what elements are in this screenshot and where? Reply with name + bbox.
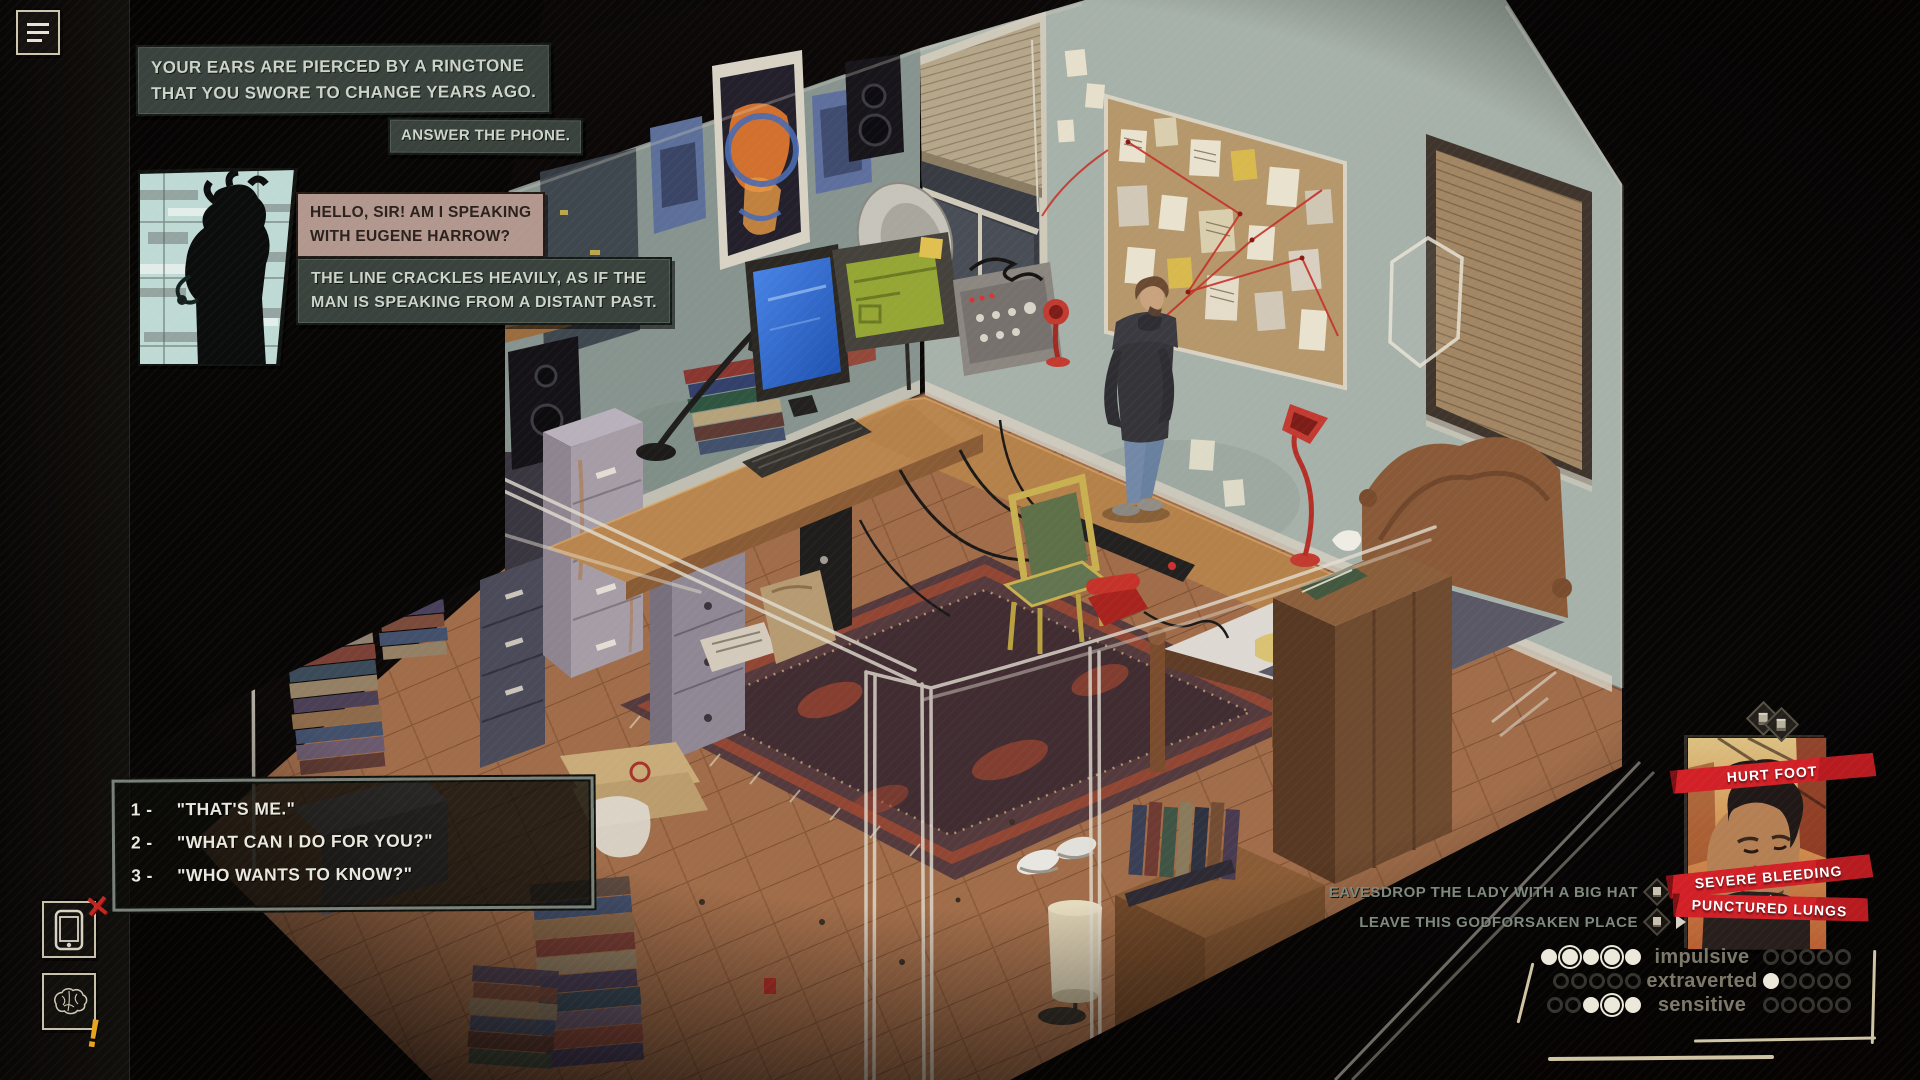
trait-dot-empty — [1763, 949, 1779, 965]
caller-speech-box: HELLO, SIR! AM I SPEAKING WITH EUGENE HA… — [296, 192, 545, 258]
trait-dot-filled — [1583, 997, 1599, 1013]
smartphone-icon — [54, 909, 84, 951]
dialogue-option-2[interactable]: 2 - "WHAT CAN I DO FOR YOU?" — [131, 829, 581, 853]
trait-dot-empty — [1799, 949, 1815, 965]
action-prompt-answer-phone: ANSWER THE PHONE. — [388, 118, 583, 155]
world-action-label: EAVESDROP THE LADY WITH A BIG HAT — [1329, 884, 1638, 901]
brain-tool-button[interactable]: ! — [42, 973, 96, 1030]
trait-dot-empty — [1571, 973, 1587, 989]
trait-dot-empty — [1625, 973, 1641, 989]
trait-dot-empty — [1553, 973, 1569, 989]
world-action-eavesdrop[interactable]: EAVESDROP THE LADY WITH A BIG HAT — [1329, 882, 1686, 902]
option-number: 3 - — [131, 865, 177, 886]
trait-dot-empty — [1799, 973, 1815, 989]
caller-portrait — [138, 168, 298, 366]
trait-dot-ring — [1562, 949, 1578, 965]
trait-dot-empty — [1835, 949, 1851, 965]
option-text: "THAT'S ME." — [177, 798, 296, 820]
trait-label: impulsive — [1641, 947, 1763, 967]
trait-dot-empty — [1565, 997, 1581, 1013]
narration-box-line-crackles: THE LINE CRACKLES HEAVILY, AS IF THE MAN… — [296, 257, 672, 325]
narration-box-ringtone: YOUR EARS ARE PIERCED BY A RINGTONE THAT… — [136, 43, 552, 116]
trait-row-extraverted: extraverted — [1545, 971, 1859, 991]
trait-dot-empty — [1781, 997, 1797, 1013]
trait-dot-filled — [1541, 949, 1557, 965]
world-action-leave[interactable]: LEAVE THIS GODFORSAKEN PLACE — [1359, 912, 1686, 932]
trait-dots-right — [1763, 949, 1859, 965]
double-diamond-icon[interactable] — [1747, 700, 1807, 744]
trait-dot-filled — [1625, 997, 1641, 1013]
trait-dot-empty — [1817, 997, 1833, 1013]
trait-dot-ring — [1604, 949, 1620, 965]
trait-dot-ring — [1604, 997, 1620, 1013]
dialogue-option-1[interactable]: 1 - "THAT'S ME." — [131, 796, 581, 820]
hamburger-menu-icon — [27, 31, 49, 34]
trait-dot-empty — [1589, 973, 1605, 989]
trait-dots-left — [1545, 949, 1641, 965]
trait-label: sensitive — [1641, 995, 1763, 1015]
trait-dots-right — [1763, 997, 1859, 1013]
option-text: "WHAT CAN I DO FOR YOU?" — [177, 830, 433, 853]
trait-dot-empty — [1547, 997, 1563, 1013]
option-number: 2 - — [131, 832, 177, 853]
trait-row-impulsive: impulsive — [1545, 947, 1859, 967]
personality-traits-panel: impulsive extraverted sensitive — [1545, 947, 1859, 1015]
trait-dots-left — [1545, 973, 1641, 989]
trait-dot-filled — [1625, 949, 1641, 965]
trait-dot-empty — [1835, 997, 1851, 1013]
trait-dot-empty — [1835, 973, 1851, 989]
game-screen: YOUR EARS ARE PIERCED BY A RINGTONE THAT… — [0, 0, 1920, 1080]
brain-icon — [49, 985, 89, 1019]
world-action-label: LEAVE THIS GODFORSAKEN PLACE — [1359, 914, 1638, 931]
trait-dot-empty — [1817, 949, 1833, 965]
phone-tool-button[interactable]: ✕ — [42, 901, 96, 958]
diamond-card-icon — [1643, 908, 1671, 936]
menu-button[interactable] — [16, 10, 60, 55]
trait-dot-filled — [1583, 949, 1599, 965]
trait-dot-empty — [1781, 949, 1797, 965]
hamburger-menu-icon — [27, 39, 42, 42]
trait-dots-left — [1545, 997, 1641, 1013]
trait-dot-empty — [1781, 973, 1797, 989]
trait-row-sensitive: sensitive — [1545, 995, 1859, 1015]
trait-dot-empty — [1607, 973, 1623, 989]
trait-label: extraverted — [1641, 971, 1763, 991]
red-x-icon: ✕ — [83, 892, 111, 924]
dialogue-option-3[interactable]: 3 - "WHO WANTS TO KNOW?" — [131, 862, 581, 886]
triangle-pointer-icon — [1676, 915, 1686, 929]
dialogue-options-box: 1 - "THAT'S ME." 2 - "WHAT CAN I DO FOR … — [112, 776, 595, 911]
option-text: "WHO WANTS TO KNOW?" — [177, 864, 412, 887]
trait-dot-empty — [1817, 973, 1833, 989]
trait-dot-empty — [1799, 997, 1815, 1013]
trait-dot-empty — [1763, 997, 1779, 1013]
trait-dots-right — [1763, 973, 1859, 989]
hamburger-menu-icon — [27, 23, 49, 26]
trait-dot-filled — [1763, 973, 1779, 989]
option-number: 1 - — [131, 799, 177, 820]
